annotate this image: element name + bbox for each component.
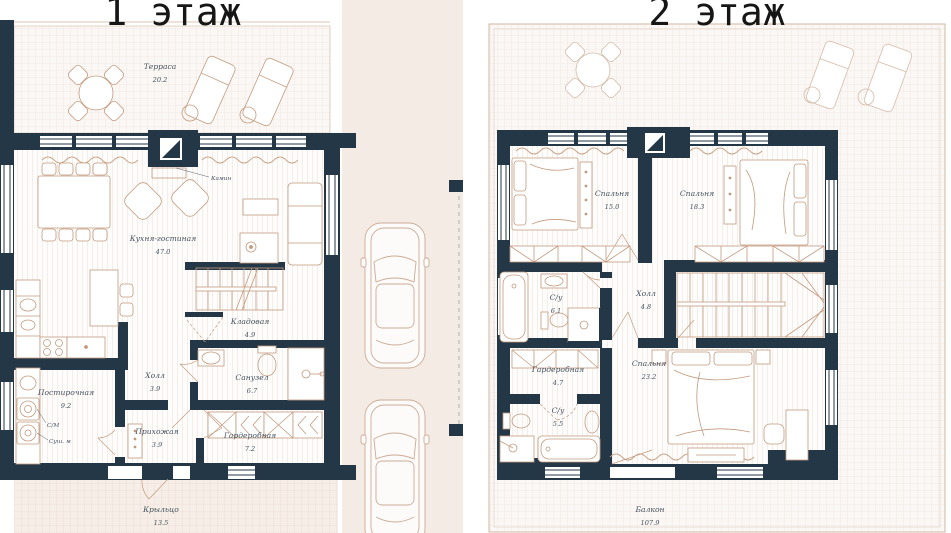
console-icon — [243, 199, 278, 215]
chair-icon — [764, 424, 784, 444]
label-f1-hall-area: 3.9 — [150, 385, 161, 393]
label-f2-balcony-area: 107.9 — [641, 519, 660, 527]
label-f1-kitchen-name: Кухня-гостиная — [129, 234, 196, 243]
shower-icon — [568, 308, 600, 342]
label-f1-porch-area: 13.5 — [154, 519, 169, 527]
bed-icon — [652, 350, 770, 444]
label-f2-bedroom1-area: 15.0 — [605, 203, 620, 211]
label-f2-bedroom2-area: 18.3 — [690, 203, 705, 211]
desk-icon — [786, 410, 808, 460]
bathtub-icon — [500, 272, 528, 342]
floorplan-image: 1 этаж 2 этаж Терраса 20.2 Кухня-гостина… — [0, 0, 951, 533]
label-f2-bathroom1-name: С/у — [550, 293, 563, 302]
label-f1-storage-area: 4.9 — [244, 331, 256, 339]
label-f1-porch-name: Крыльцо — [142, 505, 179, 514]
label-f1-terrace-area: 20.2 — [152, 76, 168, 84]
label-f2-bedroom2-name: Спальня — [680, 189, 714, 198]
label-f2-hall-name: Холл — [635, 289, 656, 298]
label-fireplace: Камин — [210, 176, 231, 182]
bathtub-icon — [538, 436, 600, 462]
label-f2-balcony-name: Балкон — [634, 505, 664, 514]
bed-icon — [512, 158, 592, 230]
label-f2-bedroom3-area: 23.2 — [641, 373, 657, 381]
label-f1-storage-name: Кладовая — [230, 317, 270, 326]
label-f2-bathroom1-area: 6.1 — [551, 307, 562, 315]
label-f2-hall-area: 4.8 — [640, 303, 652, 311]
label-f1-laundry-area: 9.2 — [61, 402, 72, 410]
label-f2-bedroom3-name: Спальня — [632, 359, 666, 368]
label-f2-bathroom2-area: 5.5 — [553, 420, 564, 428]
car-icon — [361, 400, 429, 533]
sink-icon — [541, 274, 567, 288]
kitchen-island-icon — [90, 270, 118, 326]
label-f1-bathroom-area: 6.7 — [247, 387, 258, 395]
stove-icon — [40, 337, 67, 358]
floor2-title: 2 этаж — [648, 0, 785, 34]
label-f1-entry-area: 3.9 — [152, 441, 163, 449]
fireplace-chimney-icon — [627, 127, 690, 158]
label-f1-hall-name: Холл — [144, 371, 165, 380]
label-f1-kitchen-area: 47.0 — [155, 248, 171, 256]
wardrobe-cabinets-icon — [695, 246, 824, 262]
label-f1-laundry-name: Постирочная — [37, 388, 94, 397]
label-f2-bedroom1-name: Спальня — [595, 189, 629, 198]
wardrobe-cabinets-icon — [510, 246, 630, 262]
label-f2-wardrobe-area: 4.7 — [552, 379, 564, 387]
sofa-icon — [288, 183, 322, 265]
label-f1-terrace-name: Терраса — [144, 62, 177, 71]
kitchen-counter-icon — [16, 280, 40, 358]
floor1-title: 1 этаж — [104, 0, 241, 34]
label-f1-wardrobe-name: Гардеробная — [223, 431, 276, 440]
label-f1-entry-name: Прихожая — [134, 427, 178, 436]
label-f2-bathroom2-name: С/у — [552, 406, 565, 415]
label-washer: С/М — [47, 423, 60, 429]
label-f2-wardrobe-name: Гардеробная — [531, 365, 584, 374]
label-f1-wardrobe-area: 7.2 — [245, 445, 256, 453]
label-f1-bathroom-name: Санузел — [235, 373, 268, 382]
dining-table-icon — [38, 176, 110, 228]
floorplan-drawing: 1 этаж 2 этаж Терраса 20.2 Кухня-гостина… — [0, 0, 951, 533]
car-icon — [361, 223, 429, 368]
shower-icon — [500, 436, 534, 462]
label-dryer: Суш. м — [49, 439, 71, 445]
